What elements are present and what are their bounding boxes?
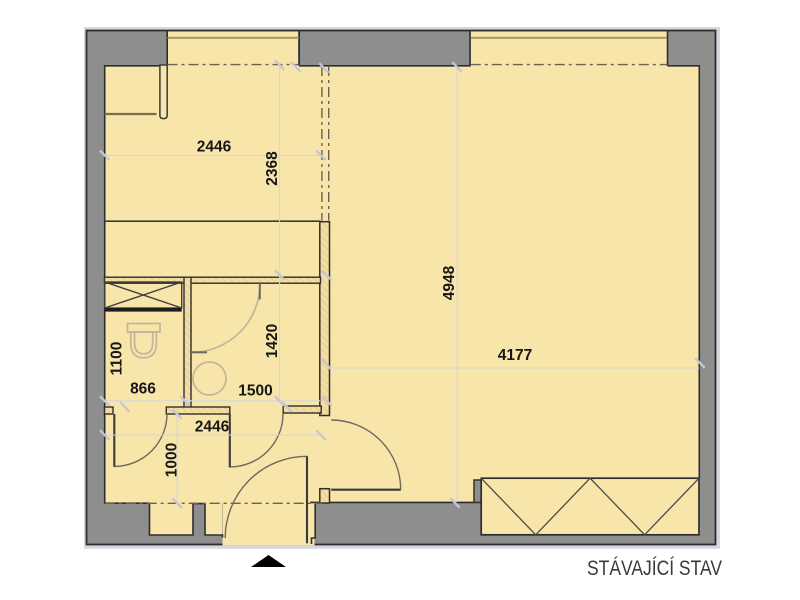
svg-text:2446: 2446 [197, 139, 232, 156]
svg-text:2368: 2368 [264, 151, 281, 186]
svg-text:1420: 1420 [264, 324, 281, 358]
svg-text:STÁVAJÍCÍ STAV: STÁVAJÍCÍ STAV [587, 557, 722, 580]
svg-text:866: 866 [130, 381, 156, 398]
svg-text:4948: 4948 [441, 265, 458, 300]
svg-text:1100: 1100 [109, 342, 126, 376]
svg-text:1500: 1500 [238, 383, 272, 400]
svg-text:2446: 2446 [195, 419, 230, 436]
svg-text:1000: 1000 [164, 443, 181, 477]
svg-text:4177: 4177 [498, 347, 532, 364]
